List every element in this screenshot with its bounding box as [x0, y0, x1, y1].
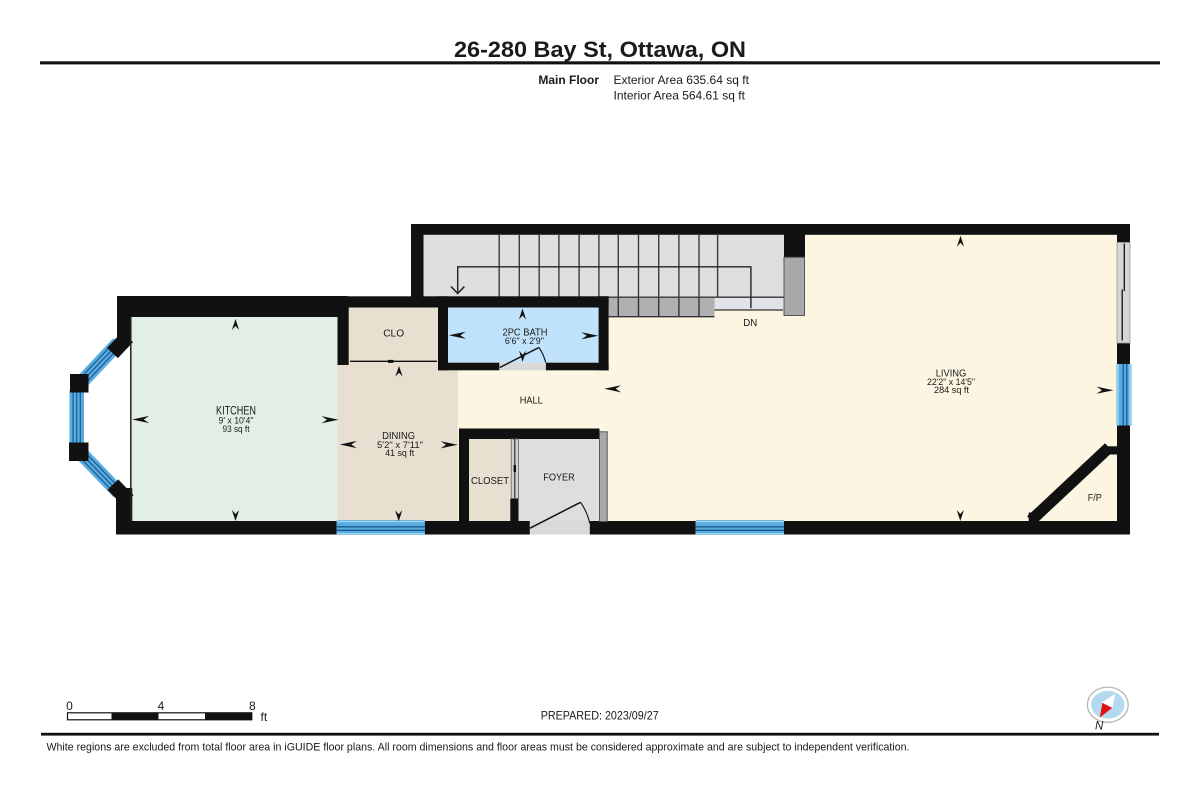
svg-text:41 sq ft: 41 sq ft [385, 448, 414, 459]
svg-text:CLO: CLO [383, 327, 404, 339]
svg-text:White regions are excluded fro: White regions are excluded from total fl… [47, 742, 910, 754]
svg-text:4: 4 [158, 699, 165, 713]
svg-text:ft: ft [261, 710, 268, 724]
svg-text:Main Floor: Main Floor [538, 73, 599, 87]
svg-text:0: 0 [66, 699, 73, 713]
svg-text:Interior Area 564.61 sq ft: Interior Area 564.61 sq ft [614, 89, 746, 103]
svg-text:93 sq ft: 93 sq ft [223, 424, 250, 435]
svg-text:F/P: F/P [1088, 493, 1102, 504]
svg-text:6'6" x 2'9": 6'6" x 2'9" [505, 336, 544, 347]
svg-text:FOYER: FOYER [543, 472, 575, 484]
svg-text:26-280 Bay St, Ottawa, ON: 26-280 Bay St, Ottawa, ON [454, 37, 746, 62]
svg-text:Exterior Area 635.64 sq ft: Exterior Area 635.64 sq ft [614, 73, 750, 87]
svg-text:DN: DN [743, 318, 757, 329]
svg-text:8: 8 [249, 699, 256, 713]
svg-text:CLOSET: CLOSET [471, 475, 510, 487]
svg-text:HALL: HALL [520, 395, 543, 407]
svg-text:PREPARED: 2023/09/27: PREPARED: 2023/09/27 [541, 709, 659, 723]
svg-text:N: N [1095, 721, 1104, 733]
svg-text:284 sq ft: 284 sq ft [934, 385, 969, 396]
